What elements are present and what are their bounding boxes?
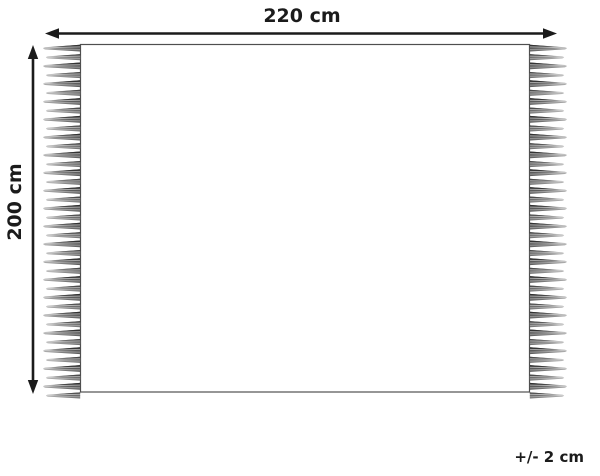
fringe-tassel [46, 161, 80, 167]
fringe-tassel [530, 108, 564, 114]
fringe-tassel [530, 205, 567, 212]
fringe-tassel [530, 303, 564, 309]
height-dimension-label: 200 cm [4, 142, 26, 262]
fringe-tassel [530, 152, 567, 159]
fringe-tassel [530, 268, 564, 274]
fringe-tassel [530, 161, 564, 167]
fringe-tassel [46, 197, 80, 203]
fringe-tassel [46, 72, 80, 78]
fringe-tassel [43, 152, 80, 159]
fringe-tassel [530, 250, 564, 256]
fringe-tassel [43, 98, 80, 105]
fringe-tassel [530, 365, 567, 372]
fringe-tassel [530, 312, 567, 319]
fringe-tassel [46, 303, 80, 309]
fringe-tassel [530, 80, 567, 87]
fringe-tassel [530, 214, 564, 220]
fringe-tassel [43, 383, 80, 390]
fringe-tassel [530, 63, 567, 70]
fringe-tassel [43, 330, 80, 337]
fringe-tassel [43, 365, 80, 372]
fringe-tassel [530, 187, 567, 194]
fringe-tassel [46, 286, 80, 292]
fringe-tassel [530, 294, 567, 301]
fringe-tassel [46, 250, 80, 256]
fringe-tassel [530, 321, 564, 327]
fringe-tassel [530, 330, 567, 337]
fringe-tassel [43, 169, 80, 176]
fringe-right [530, 45, 567, 399]
fringe-tassel [530, 383, 567, 390]
fringe-tassel [530, 357, 564, 363]
height-arrow-head-top [28, 45, 38, 59]
fringe-tassel [530, 392, 564, 398]
fringe-tassel [46, 214, 80, 220]
fringe-tassel [46, 232, 80, 238]
fringe-tassel [43, 63, 80, 70]
fringe-tassel [530, 125, 564, 131]
fringe-tassel [530, 90, 564, 96]
fringe-tassel [530, 54, 564, 60]
fringe-tassel [46, 90, 80, 96]
fringe-tassel [43, 116, 80, 123]
fringe-tassel [46, 54, 80, 60]
height-arrow-head-bottom [28, 380, 38, 394]
fringe-tassel [530, 72, 564, 78]
fringe-tassel [46, 375, 80, 381]
fringe-tassel [530, 375, 564, 381]
fringe-tassel [43, 294, 80, 301]
fringe-tassel [530, 179, 564, 185]
fringe-tassel [530, 143, 564, 149]
fringe-tassel [530, 339, 564, 345]
fringe-tassel [43, 187, 80, 194]
diagram-canvas [0, 0, 600, 476]
fringe-tassel [46, 179, 80, 185]
width-arrow-head-left [45, 28, 59, 38]
fringe-left [43, 45, 80, 399]
width-arrow-head-right [543, 28, 557, 38]
fringe-tassel [43, 80, 80, 87]
fringe-tassel [46, 268, 80, 274]
fringe-tassel [46, 125, 80, 131]
fringe-tassel [46, 321, 80, 327]
fringe-tassel [530, 116, 567, 123]
fringe-tassel [43, 241, 80, 248]
fringe-tassel [43, 347, 80, 354]
fringe-tassel [43, 258, 80, 265]
fringe-tassel [43, 134, 80, 141]
fringe-tassel [43, 45, 80, 52]
fringe-tassel [530, 286, 564, 292]
width-dimension-arrow [45, 28, 557, 38]
width-dimension-label: 220 cm [152, 5, 452, 27]
fringe-tassel [46, 357, 80, 363]
fringe-tassel [46, 108, 80, 114]
fringe-tassel [530, 197, 564, 203]
fringe-tassel [43, 276, 80, 283]
fringe-tassel [46, 392, 80, 398]
fringe-tassel [530, 98, 567, 105]
fringe-tassel [43, 312, 80, 319]
fringe-tassel [530, 258, 567, 265]
fringe-tassel [43, 205, 80, 212]
fringe-tassel [530, 241, 567, 248]
fringe-tassel [46, 339, 80, 345]
fringe-tassel [530, 223, 567, 230]
height-dimension-arrow [28, 45, 38, 394]
fringe-tassel [530, 45, 567, 52]
product-dimension-diagram: 220 cm 200 cm +/- 2 cm [0, 0, 600, 476]
fringe-tassel [530, 347, 567, 354]
fringe-tassel [530, 276, 567, 283]
fringe-tassel [43, 223, 80, 230]
tolerance-label: +/- 2 cm [514, 448, 584, 466]
fringe-tassel [530, 134, 567, 141]
rug-outline [81, 45, 530, 393]
fringe-tassel [530, 169, 567, 176]
fringe-tassel [530, 232, 564, 238]
fringe-tassel [46, 143, 80, 149]
